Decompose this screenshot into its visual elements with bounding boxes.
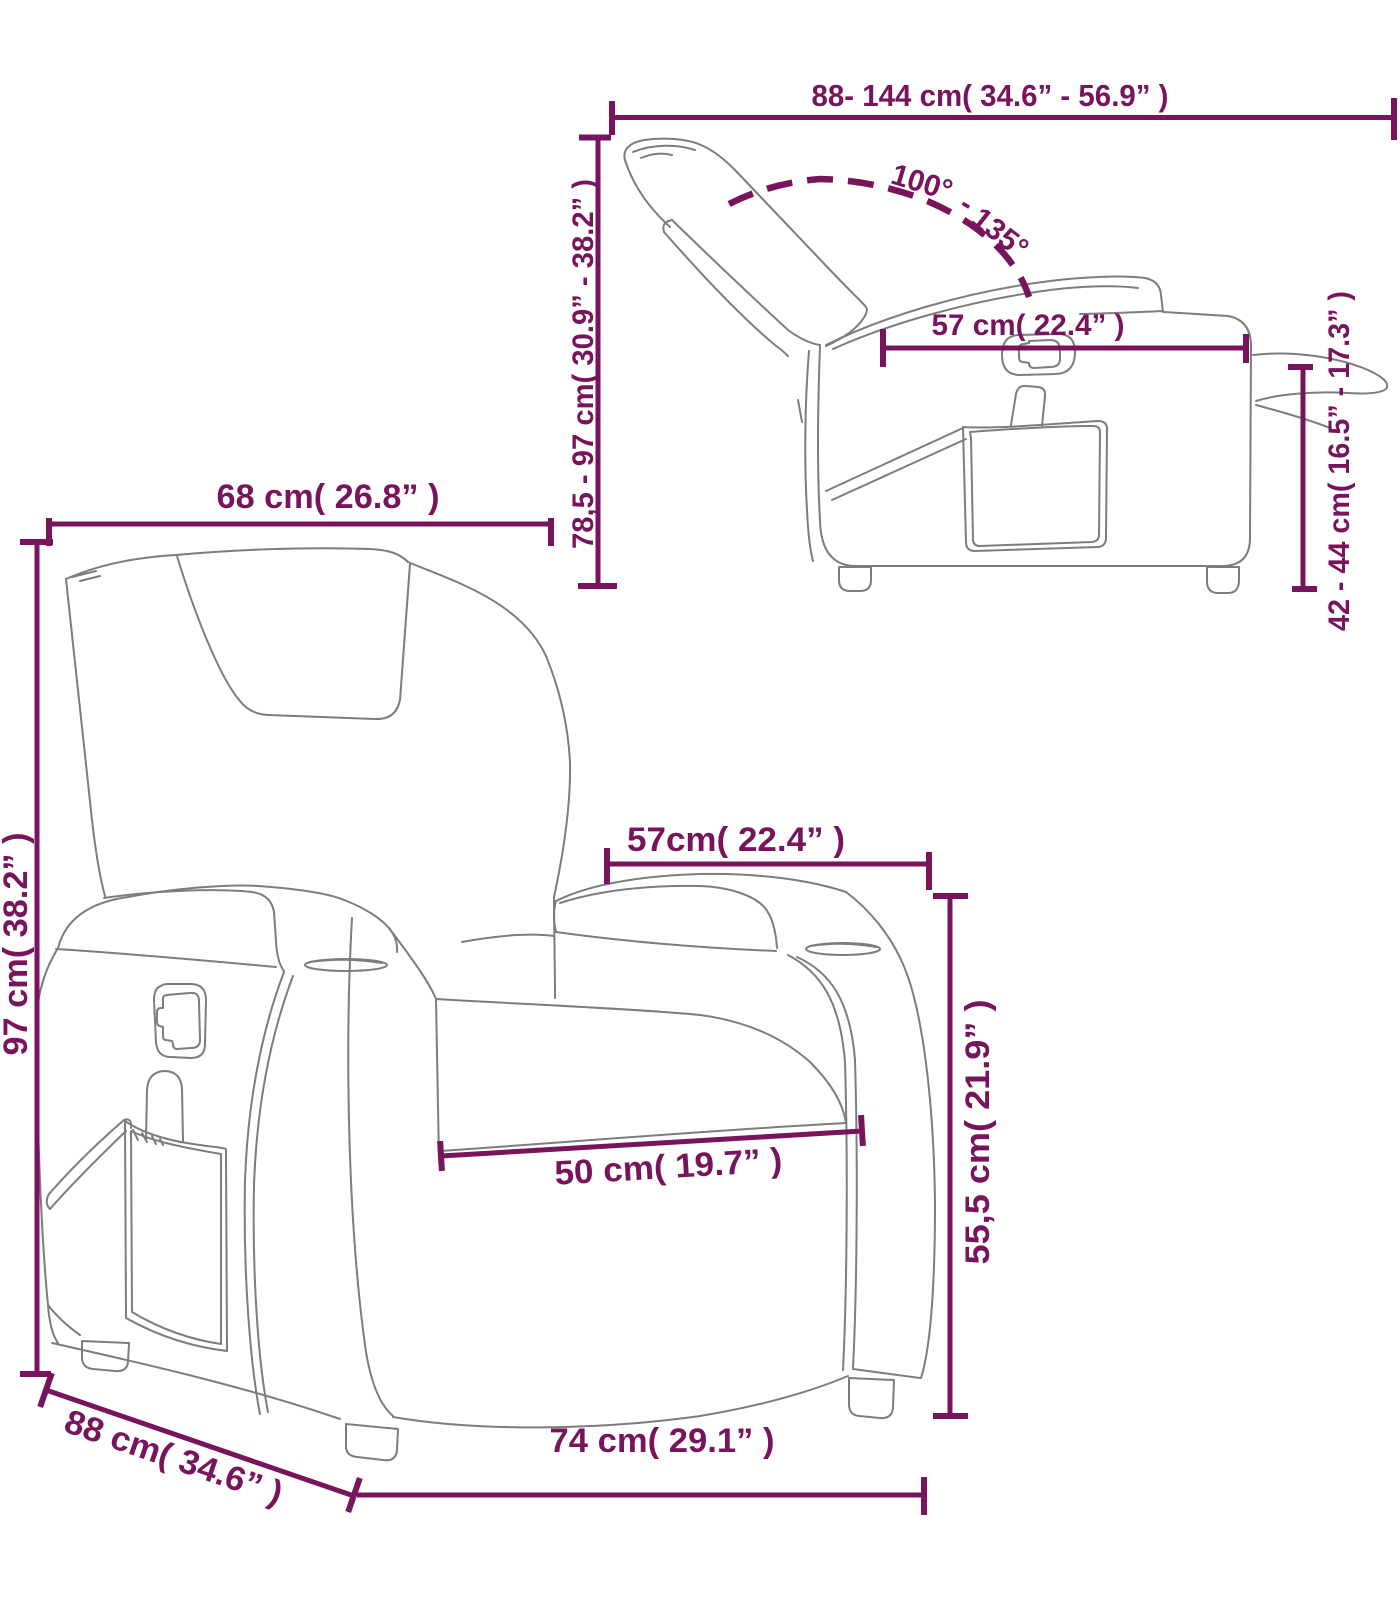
svg-text:88- 144 cm( 34.6” - 56.9” ): 88- 144 cm( 34.6” - 56.9” )	[812, 78, 1169, 113]
svg-text:78,5 - 97 cm( 30.9” - 38.2” ): 78,5 - 97 cm( 30.9” - 38.2” )	[567, 179, 600, 549]
svg-text:97 cm( 38.2” ): 97 cm( 38.2” )	[0, 833, 35, 1056]
svg-text:57 cm( 22.4” ): 57 cm( 22.4” )	[932, 309, 1125, 342]
svg-text:55,5 cm( 21.9” ): 55,5 cm( 21.9” )	[959, 1000, 997, 1265]
svg-text:74 cm( 29.1” ): 74 cm( 29.1” )	[550, 1422, 775, 1460]
svg-text:68 cm( 26.8” ): 68 cm( 26.8” )	[217, 478, 440, 516]
svg-text:57cm( 22.4” ): 57cm( 22.4” )	[627, 821, 845, 859]
svg-text:42 - 44 cm( 16.5” - 17.3” ): 42 - 44 cm( 16.5” - 17.3” )	[1323, 291, 1356, 631]
